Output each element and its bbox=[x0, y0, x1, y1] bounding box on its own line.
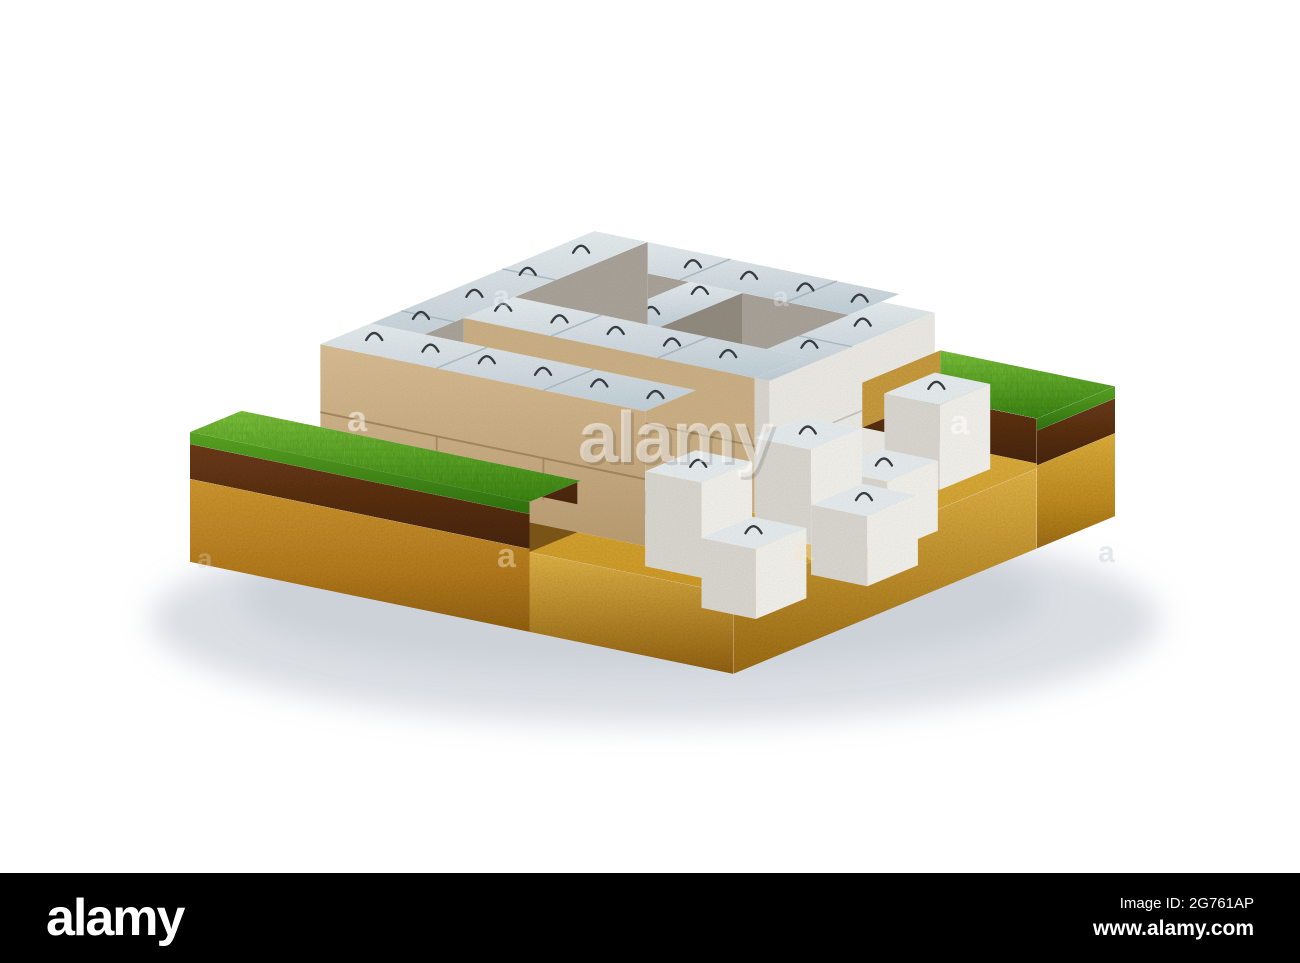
watermark-footer: alamy Image ID: 2G761AP www.alamy.com bbox=[0, 873, 1300, 963]
watermark-tile: a bbox=[497, 537, 517, 575]
watermark-tile: a bbox=[1098, 536, 1115, 569]
watermark-tile: a bbox=[795, 530, 815, 568]
footer-meta: Image ID: 2G761AP www.alamy.com bbox=[1093, 895, 1254, 941]
alamy-url: www.alamy.com bbox=[1093, 917, 1254, 941]
watermark-tile: a bbox=[773, 281, 789, 312]
watermark-alamy: alamy bbox=[578, 398, 774, 478]
stock-illustration: alamy alamy aaaaaaaaa alamy Image ID: 2G… bbox=[0, 0, 1300, 963]
scene-canvas: alamy alamy aaaaaaaaa bbox=[0, 0, 1300, 873]
image-id: Image ID: 2G761AP bbox=[1093, 895, 1254, 912]
watermark-tile: a bbox=[347, 398, 368, 439]
alamy-logo: alamy bbox=[46, 892, 183, 944]
watermark-tile: a bbox=[493, 280, 510, 313]
watermark-tile: a bbox=[950, 404, 970, 442]
watermark-tile: a bbox=[197, 543, 213, 574]
watermark-tile: a bbox=[1140, 361, 1157, 394]
